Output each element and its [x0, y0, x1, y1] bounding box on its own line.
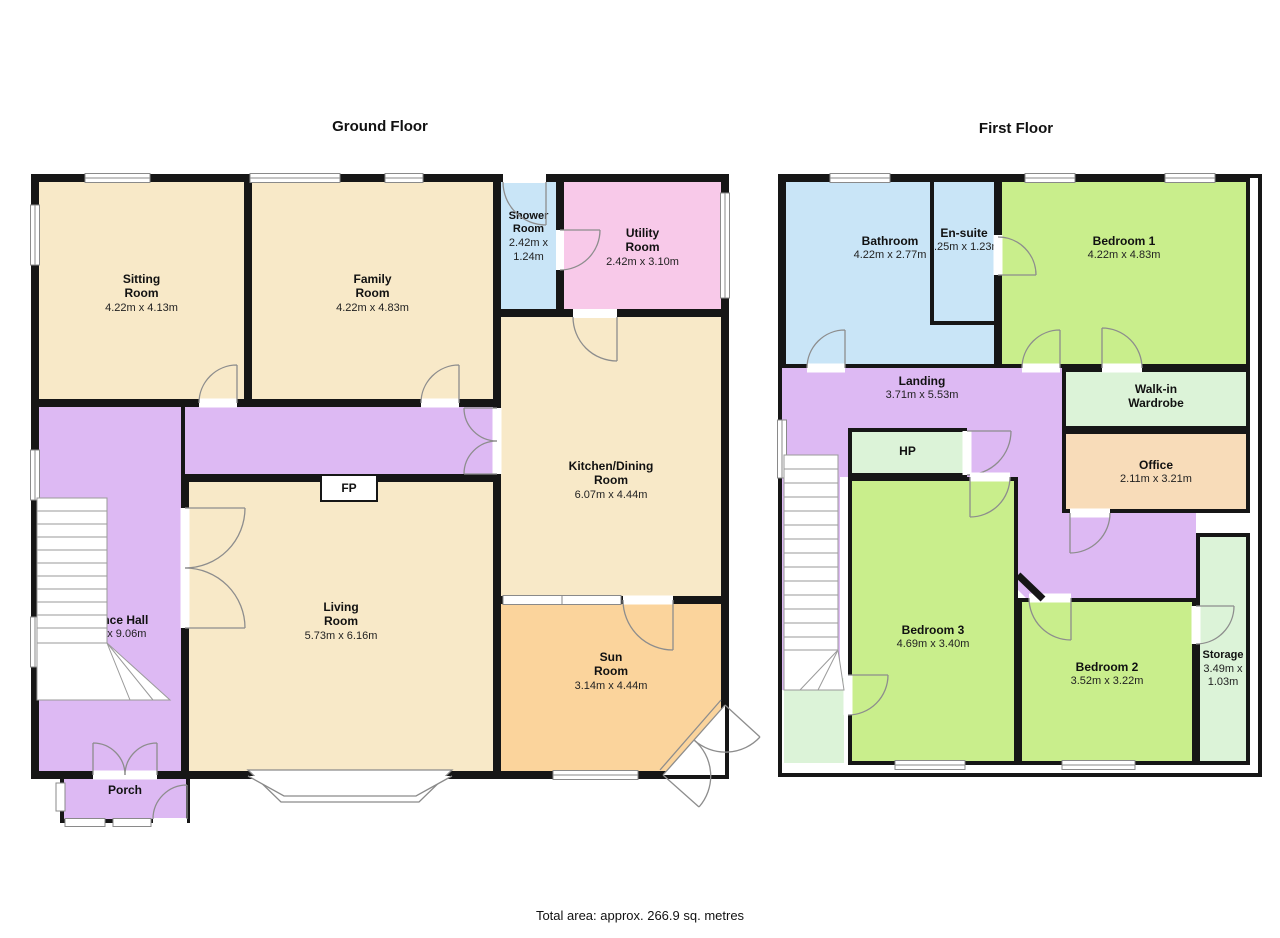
- hall-corridor-join-patch: [39, 407, 181, 474]
- room-bedroom-3: Bedroom 3 4.69m x 3.40m: [848, 477, 1018, 765]
- first-floor-plan: Landing 3.71m x 5.53m Bathroom 4.22m x 2…: [782, 178, 1250, 765]
- room-label: Living Room: [311, 600, 371, 629]
- room-dims: 3.52m x 3.22m: [1022, 675, 1192, 688]
- room-kitchen-dining: Kitchen/Dining Room 6.07m x 4.44m: [497, 313, 725, 600]
- room-dims: 2.42m x 3.10m: [564, 256, 721, 269]
- room-dims: 4.22m x 4.83m: [1002, 249, 1246, 262]
- room-label: Office: [1066, 458, 1246, 472]
- fireplace-box: FP: [320, 474, 378, 502]
- ground-floor-title: Ground Floor: [35, 118, 725, 135]
- room-dims: 6.07m x 4.44m: [501, 489, 721, 502]
- room-living-room: Living Room 5.73m x 6.16m: [185, 478, 497, 775]
- landing-label-group: Landing 3.71m x 5.53m: [782, 374, 1062, 403]
- room-dims: 5.73m x 6.16m: [189, 630, 493, 643]
- room-label: Storage: [1200, 649, 1246, 662]
- stairwell-block: [784, 678, 844, 763]
- room-bedroom-2: Bedroom 2 3.52m x 3.22m: [1018, 598, 1196, 765]
- room-walk-in-wardrobe: Walk-in Wardrobe: [1062, 368, 1250, 430]
- room-dims: 3.49m x 1.03m: [1200, 663, 1246, 689]
- room-office: Office 2.11m x 3.21m: [1062, 430, 1250, 513]
- room-bedroom-1: Bedroom 1 4.22m x 4.83m: [998, 178, 1250, 368]
- room-dims: 7.33m x 9.06m: [39, 628, 181, 641]
- room-sitting-room: Sitting Room 4.22m x 4.13m: [35, 178, 248, 403]
- room-dims: 4.22m x 4.83m: [252, 302, 493, 315]
- ground-floor-plan: Entrance Hall 7.33m x 9.06m Sitting Room…: [35, 178, 725, 828]
- room-dims: 4.22m x 4.13m: [39, 302, 244, 315]
- room-dims: 2.42m x 1.24m: [504, 237, 554, 263]
- room-dims: 3.71m x 5.53m: [782, 389, 1062, 402]
- first-floor-title: First Floor: [782, 120, 1250, 137]
- room-ensuite: En-suite .25m x 1.23m: [930, 178, 998, 325]
- room-dims: 3.14m x 4.44m: [501, 680, 721, 693]
- room-label: Bedroom 2: [1022, 660, 1192, 674]
- room-label: Bedroom 1: [1002, 234, 1246, 248]
- room-label: Shower Room: [501, 210, 556, 236]
- room-dims: 4.69m x 3.40m: [852, 638, 1014, 651]
- room-shower-room: Shower Room 2.42m x 1.24m: [497, 178, 560, 313]
- room-utility-room: Utility Room 2.42m x 3.10m: [560, 178, 725, 313]
- room-label: Porch: [64, 783, 186, 797]
- room-label: Utility Room: [613, 226, 673, 255]
- room-label: Bedroom 3: [852, 623, 1014, 637]
- room-dims: .25m x 1.23m: [934, 241, 994, 254]
- room-dims: 2.11m x 3.21m: [1066, 473, 1246, 486]
- floorplan-canvas: Ground Floor First Floor Entrance Hall 7…: [0, 0, 1280, 938]
- room-label: Entrance Hall: [65, 613, 155, 627]
- room-label: Kitchen/Dining Room: [554, 459, 669, 488]
- room-label: En-suite: [934, 226, 994, 240]
- room-label: HP: [852, 444, 963, 458]
- room-storage: Storage 3.49m x 1.03m: [1196, 533, 1250, 765]
- room-hp: HP: [848, 428, 967, 477]
- room-label: Family Room: [338, 272, 408, 301]
- room-porch: Porch: [60, 775, 190, 823]
- room-label: Sitting Room: [107, 272, 177, 301]
- room-label: Landing: [782, 374, 1062, 388]
- room-label: Sun Room: [586, 650, 636, 679]
- total-area-note: Total area: approx. 266.9 sq. metres: [0, 908, 1280, 923]
- room-label: Walk-in Wardrobe: [1111, 382, 1201, 411]
- room-family-room: Family Room 4.22m x 4.83m: [248, 178, 497, 403]
